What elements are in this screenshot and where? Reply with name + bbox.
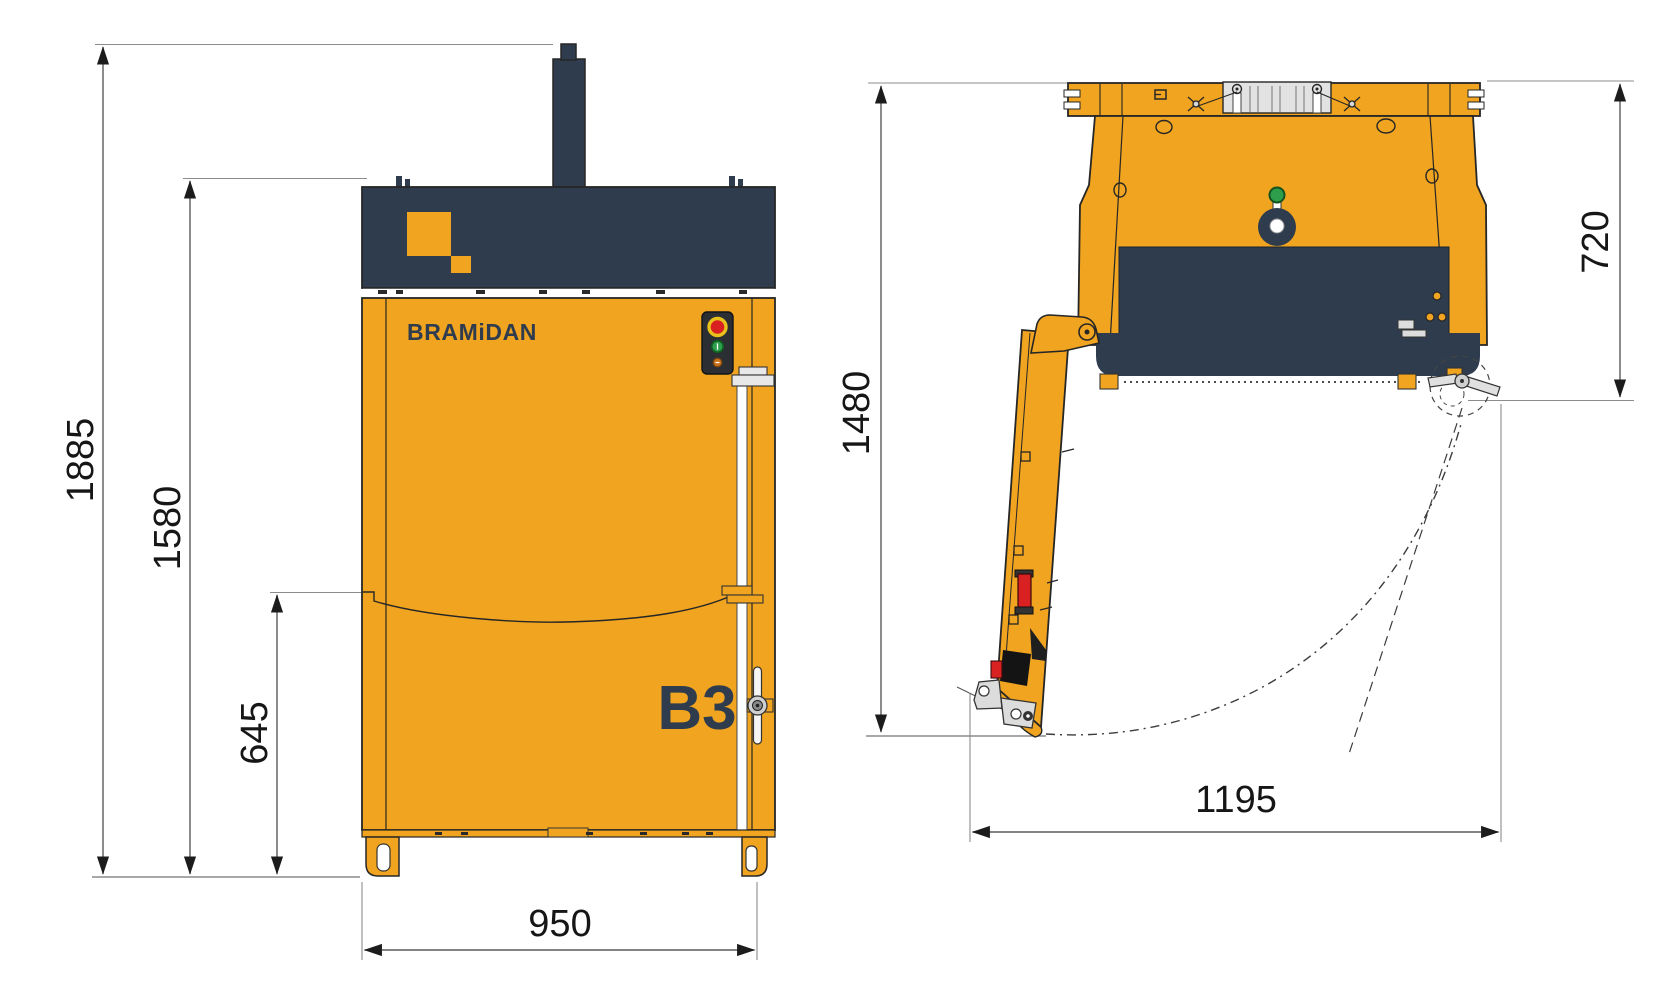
door-pivot (1031, 315, 1099, 353)
dim-label-height-door-open: 1480 (836, 371, 878, 456)
emergency-stop-button (709, 319, 726, 336)
dim-label-width: 950 (528, 903, 591, 945)
logo-square-large (407, 212, 451, 256)
base-and-feet (362, 828, 775, 876)
door-gas-strut (1015, 570, 1033, 614)
door-swing-arc (1046, 424, 1461, 735)
diagram-canvas: 1885 1580 645 950 (0, 0, 1680, 1000)
door-swing-radius (1348, 408, 1462, 757)
logo-square-small (451, 256, 471, 273)
lower-dark-band (1096, 333, 1480, 376)
dim-label-height-body: 1580 (147, 486, 189, 571)
baler-front: BRAMiDAN B3 (362, 44, 775, 876)
baler-side (957, 82, 1500, 757)
dim-width: 950 (362, 882, 757, 960)
door-red-block (991, 661, 1002, 678)
press-cylinder-cap (561, 44, 576, 60)
top-plate (1064, 82, 1484, 116)
dim-label-depth-door-open: 1195 (1195, 779, 1277, 821)
control-panel (702, 312, 733, 374)
model-label: B3 (657, 674, 736, 743)
open-door (957, 330, 1074, 737)
dim-label-height-lower-door: 645 (234, 701, 276, 764)
dim-height-lower-door: 645 (234, 593, 363, 875)
dim-label-height-total: 1885 (60, 418, 102, 503)
hinge-strip (737, 386, 747, 830)
dim-height-body: 1580 (147, 179, 367, 875)
front-view: 1885 1580 645 950 (60, 44, 775, 960)
cabinet-body (362, 298, 775, 830)
side-view: 1480 720 1195 (836, 81, 1634, 842)
dim-depth-top: 720 (1468, 81, 1634, 401)
baler-dimension-drawing: 1885 1580 645 950 (0, 0, 1680, 1000)
dim-label-depth-top: 720 (1575, 210, 1617, 273)
brand-logotype: BRAMiDAN (407, 319, 537, 345)
housing-gap (363, 289, 774, 298)
press-cylinder (553, 59, 585, 188)
door-pad (1000, 650, 1031, 686)
